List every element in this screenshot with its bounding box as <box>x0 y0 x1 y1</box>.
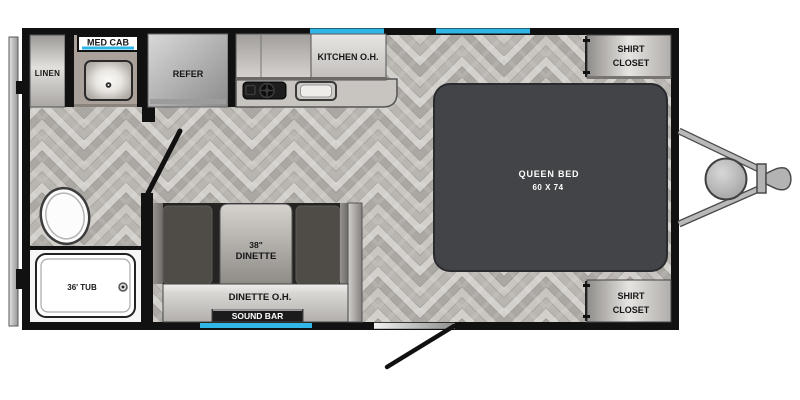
svg-text:SHIRT: SHIRT <box>618 44 646 54</box>
svg-text:DINETTE O.H.: DINETTE O.H. <box>229 292 292 303</box>
svg-text:SHIRT: SHIRT <box>618 291 646 301</box>
svg-text:38": 38" <box>249 240 263 250</box>
svg-text:KITCHEN O.H.: KITCHEN O.H. <box>317 52 378 62</box>
svg-text:REFER: REFER <box>173 69 204 79</box>
svg-text:36' TUB: 36' TUB <box>67 283 97 292</box>
svg-text:CLOSET: CLOSET <box>613 58 650 68</box>
svg-text:CLOSET: CLOSET <box>613 305 650 315</box>
svg-text:SOUND BAR: SOUND BAR <box>232 311 283 321</box>
svg-text:60 X 74: 60 X 74 <box>532 183 563 192</box>
svg-text:DINETTE: DINETTE <box>236 251 277 262</box>
svg-text:QUEEN BED: QUEEN BED <box>519 169 580 179</box>
svg-text:LINEN: LINEN <box>35 69 61 78</box>
svg-text:MED CAB: MED CAB <box>87 38 129 48</box>
